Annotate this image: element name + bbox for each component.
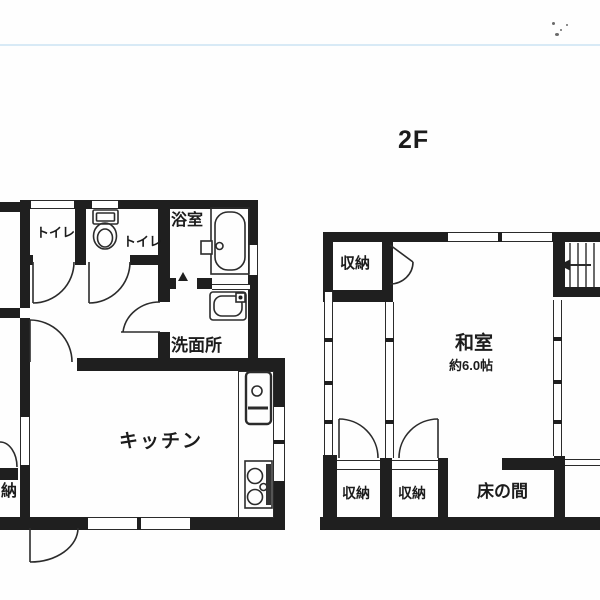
room-label-closet-bottom-left: 収納 — [342, 486, 370, 500]
door-swing-arc — [121, 302, 160, 332]
door-swing-arc — [399, 419, 438, 458]
bathtub-icon — [201, 208, 249, 274]
door-swing-arc — [30, 320, 72, 362]
washbasin-icon — [210, 292, 246, 320]
door-swing-arc — [33, 262, 74, 303]
toilet-icon — [93, 210, 118, 249]
room-label-toilet2: トイレ — [123, 235, 162, 248]
closet-door-icon — [390, 245, 413, 284]
room-label-bath: 浴室 — [171, 213, 203, 229]
plan-symbols — [0, 0, 600, 600]
room-label-closet-top: 収納 — [340, 256, 370, 271]
room-label-closet-bottom-right: 収納 — [398, 486, 426, 500]
room-label-toilet1: トイレ — [36, 226, 75, 239]
room-label-kitchen: キッチン — [119, 432, 203, 451]
room-label-closet-partial: 納 — [1, 484, 17, 500]
door-swing-arc — [89, 262, 130, 303]
floor2-header: 2F — [398, 128, 429, 153]
room-label-washroom: 洗面所 — [171, 337, 222, 354]
kitchen-sink-icon — [246, 372, 271, 424]
room-label-tatami: 和室 — [455, 334, 493, 353]
door-swing-arc — [0, 442, 17, 467]
floorplan-scan: 2F トイレ トイレ 浴室 洗面所 キッチン 納 収納 収納 収納 和室 約6.… — [0, 0, 600, 600]
door-swing-arc — [339, 419, 378, 458]
bath-door-icon — [178, 272, 188, 281]
room-label-alcove: 床の間 — [477, 483, 528, 500]
room-size-label: 約6.0帖 — [449, 359, 493, 372]
stove-icon — [245, 461, 272, 508]
door-swing-arc — [30, 528, 78, 562]
